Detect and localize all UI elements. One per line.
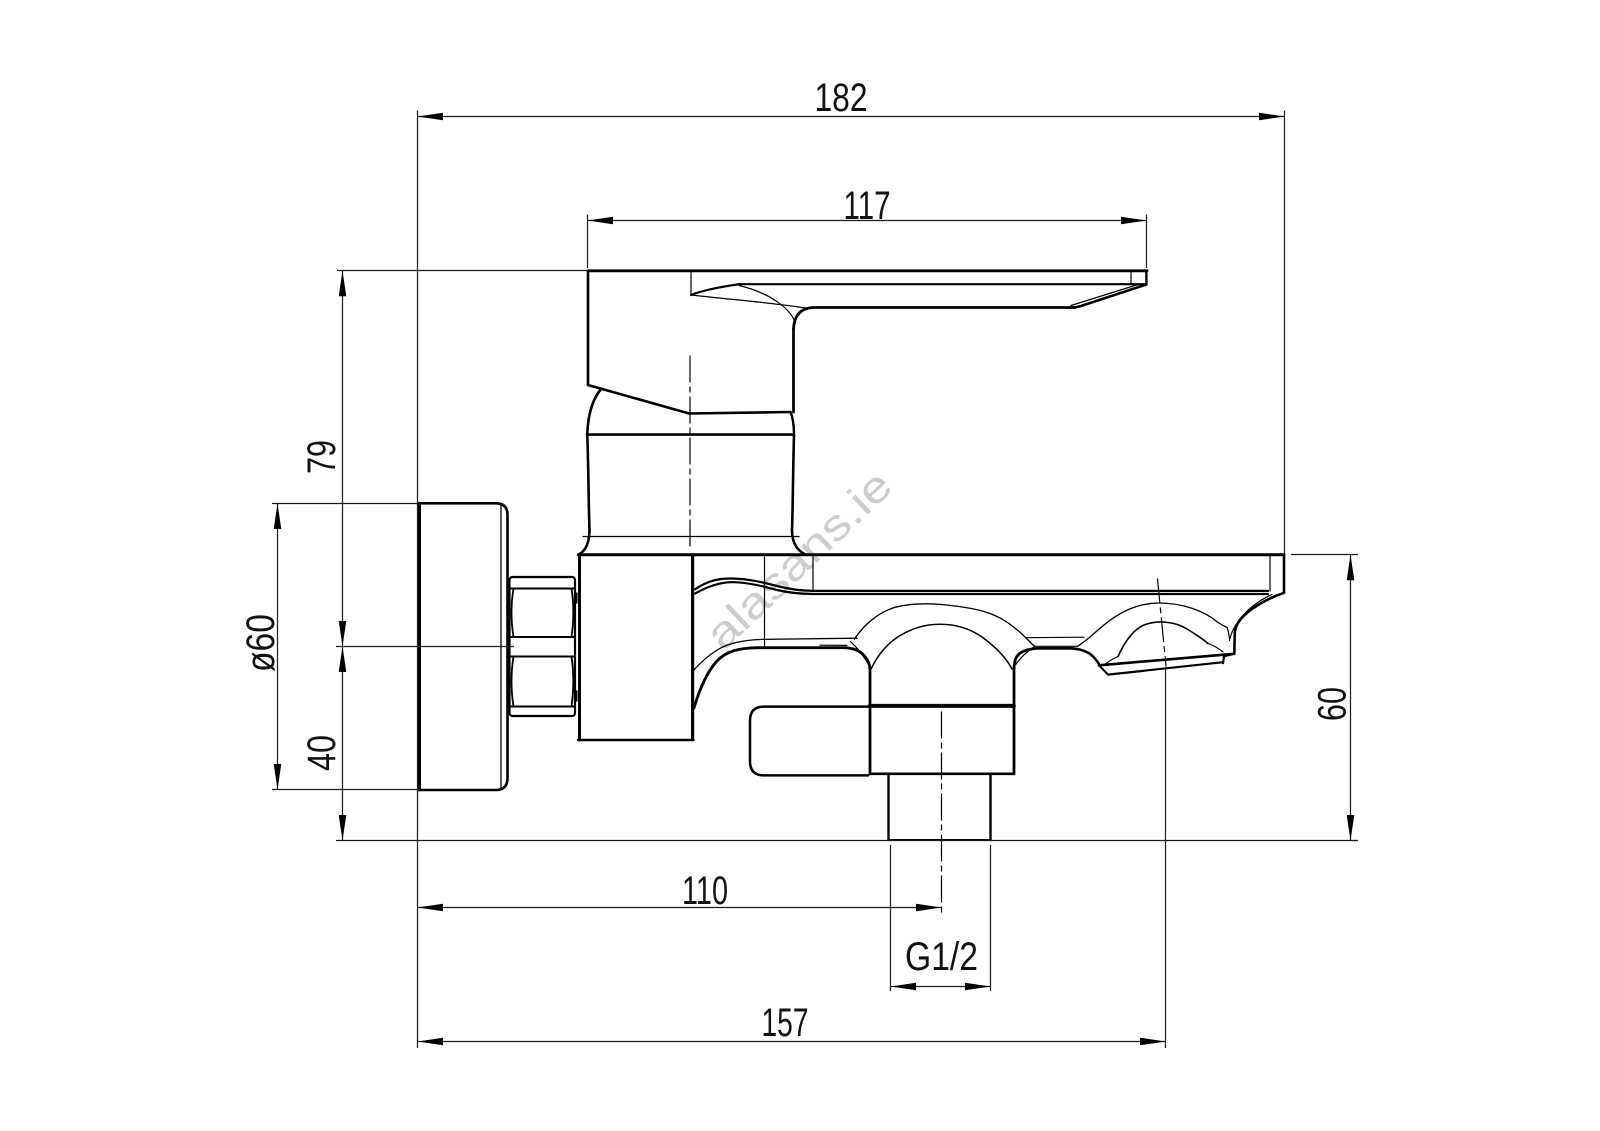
svg-text:60: 60 <box>1311 687 1355 721</box>
svg-text:79: 79 <box>300 440 344 474</box>
svg-text:G1/2: G1/2 <box>905 935 978 979</box>
svg-text:157: 157 <box>762 1001 809 1045</box>
svg-text:182: 182 <box>815 76 868 120</box>
svg-text:110: 110 <box>682 869 728 913</box>
svg-text:40: 40 <box>300 735 344 771</box>
svg-text:117: 117 <box>844 184 891 228</box>
svg-text:ø60: ø60 <box>239 614 283 672</box>
